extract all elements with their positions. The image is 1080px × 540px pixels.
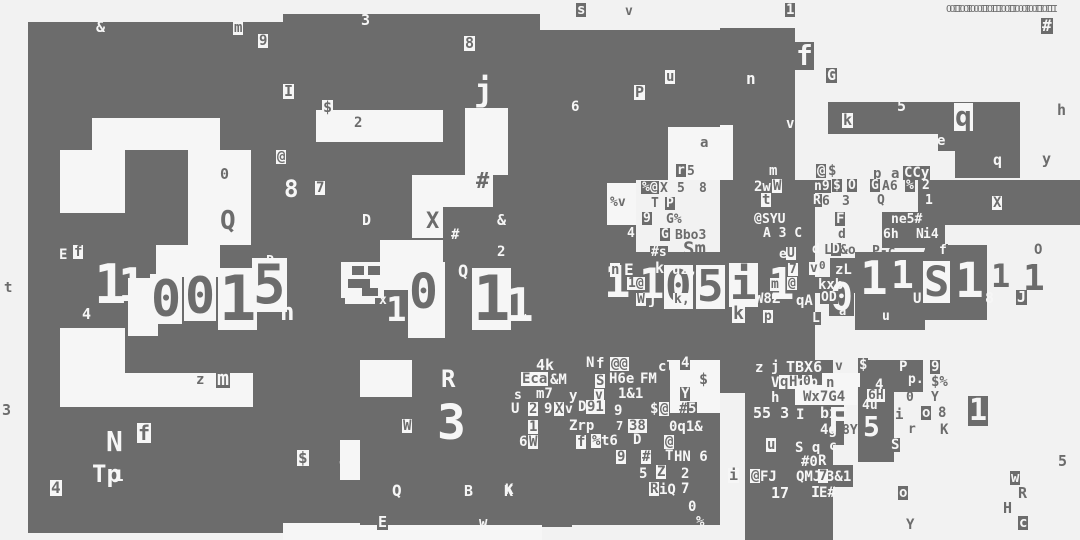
glyph: 8 bbox=[284, 177, 298, 201]
glyph: 5 bbox=[677, 182, 685, 195]
glyph: 3 bbox=[361, 13, 370, 28]
glyph: f bbox=[576, 435, 586, 449]
glyph: u bbox=[665, 70, 675, 84]
glyph: R bbox=[817, 454, 827, 468]
glyph: 4g bbox=[820, 423, 837, 437]
glyph: 7 bbox=[681, 482, 689, 496]
glyph: c bbox=[829, 440, 837, 453]
glyph: 1 bbox=[860, 255, 888, 301]
glyph: G% bbox=[666, 213, 682, 226]
gray-inner-block bbox=[352, 266, 364, 275]
glyph: 9 bbox=[930, 360, 940, 374]
glyph: $ bbox=[650, 402, 658, 416]
glyph: zL bbox=[835, 263, 852, 277]
glyph: X bbox=[426, 211, 439, 233]
glyph: % bbox=[905, 179, 915, 192]
glyph: m bbox=[769, 164, 777, 178]
glyph: 3&1 bbox=[826, 470, 851, 484]
glyph: h bbox=[771, 391, 779, 405]
glyph: z bbox=[195, 373, 205, 387]
glyph: q bbox=[993, 153, 1002, 168]
glyph: 8 bbox=[938, 406, 946, 420]
glyph: v bbox=[835, 360, 843, 373]
glyph: H bbox=[1003, 501, 1012, 516]
glyph: n9 bbox=[813, 180, 831, 193]
glyph: 5 bbox=[696, 265, 725, 309]
glyph: 5 bbox=[687, 402, 697, 416]
glyph: # bbox=[450, 228, 460, 242]
glyph: 2 bbox=[681, 467, 689, 481]
glyph: A6 bbox=[882, 180, 898, 193]
glyph: v bbox=[625, 5, 633, 18]
glyph: 1@ bbox=[627, 277, 645, 290]
glyph: B bbox=[464, 484, 473, 499]
glyph: G bbox=[660, 228, 670, 241]
glyph: 2 bbox=[528, 402, 538, 416]
glyph: @ bbox=[816, 164, 826, 178]
glyph: t bbox=[761, 193, 771, 207]
glyph: n bbox=[746, 71, 756, 87]
glyph: y bbox=[569, 389, 577, 403]
glyph: F bbox=[835, 212, 845, 226]
glyph: @ bbox=[787, 277, 797, 290]
glyph: E bbox=[59, 248, 67, 262]
glyph: @ bbox=[659, 402, 669, 416]
glyph: O bbox=[1034, 243, 1042, 257]
white-block bbox=[283, 523, 360, 540]
glyph: f bbox=[938, 244, 948, 257]
glyph: 2 bbox=[922, 179, 930, 192]
gray-block bbox=[955, 133, 1020, 178]
glyph: D bbox=[362, 213, 371, 228]
glyph: k bbox=[655, 261, 664, 276]
glyph: r bbox=[908, 423, 916, 436]
glyph: U bbox=[912, 292, 922, 306]
glyph: W bbox=[772, 179, 782, 193]
glyph: 6 bbox=[519, 435, 527, 449]
glyph: Y bbox=[906, 518, 914, 532]
glyph: qA bbox=[796, 294, 813, 308]
glyph: 3 bbox=[842, 195, 850, 208]
glyph: R bbox=[441, 367, 455, 391]
glyph: TBX6 bbox=[786, 360, 822, 375]
glyph: FM bbox=[640, 372, 657, 386]
glyph: R bbox=[1018, 486, 1027, 501]
glyph: 2 bbox=[354, 116, 362, 130]
glyph: S bbox=[890, 438, 900, 452]
glyph: f bbox=[795, 42, 814, 70]
glyph: I bbox=[283, 84, 294, 99]
glyph: f bbox=[596, 357, 604, 371]
glyph: 5 bbox=[1058, 454, 1067, 469]
glyph: 1 bbox=[114, 468, 124, 484]
glyph: X bbox=[660, 182, 668, 195]
glyph: 9 bbox=[544, 402, 552, 416]
glyph: HN 6 bbox=[674, 450, 708, 464]
glyph: #s bbox=[650, 246, 668, 259]
glyph: 1&1 bbox=[618, 387, 643, 401]
gray-block bbox=[720, 360, 745, 393]
white-block bbox=[345, 296, 375, 304]
glyph: Q bbox=[458, 264, 468, 281]
glyph: o bbox=[898, 486, 908, 500]
glyph: $ bbox=[322, 100, 333, 115]
glyph: i bbox=[895, 408, 903, 422]
glyph: 8 bbox=[464, 36, 475, 51]
glyph: T bbox=[664, 449, 674, 463]
glyph: &M bbox=[550, 373, 567, 387]
glyph: 1 bbox=[1023, 261, 1045, 297]
white-block bbox=[465, 108, 508, 175]
white-block bbox=[60, 328, 125, 376]
glyph: 6 bbox=[822, 195, 830, 208]
glyph: 1 bbox=[968, 396, 988, 426]
glyph: j bbox=[474, 74, 493, 106]
gray-block bbox=[360, 397, 412, 525]
glyph: v bbox=[809, 262, 819, 275]
glyph: 7 bbox=[616, 420, 623, 432]
glyph: p bbox=[763, 310, 773, 323]
glyph: 0 bbox=[150, 274, 182, 324]
glyph: 6h bbox=[883, 228, 899, 241]
glyph: ne5# bbox=[891, 213, 922, 226]
glyph: O bbox=[847, 179, 857, 192]
glyph: f bbox=[137, 423, 151, 443]
glyph: 1 bbox=[118, 262, 146, 308]
glyph: % bbox=[591, 434, 601, 448]
glyph: m bbox=[216, 368, 230, 388]
glyph: X bbox=[554, 402, 564, 416]
glyph: 0 bbox=[688, 500, 696, 514]
glyph: uz, bbox=[672, 263, 697, 277]
glyph: n bbox=[826, 376, 834, 390]
glyph: e bbox=[937, 134, 945, 148]
glyph: 55 3 bbox=[753, 406, 789, 421]
glyph: D bbox=[633, 433, 641, 447]
glyph: 0 bbox=[184, 271, 216, 321]
glyph: 3 bbox=[2, 403, 11, 418]
glyph: p. bbox=[908, 373, 924, 386]
glyph: & bbox=[497, 213, 506, 228]
glyph: R bbox=[649, 482, 659, 496]
glyph: Q bbox=[392, 483, 402, 499]
barcode-text: OOIIOOIOOOIIOIIIOOIIOOOIOOIIOIII bbox=[946, 5, 1055, 15]
glyph: j bbox=[648, 293, 656, 307]
glyph: 0 bbox=[819, 260, 826, 271]
glyph: n bbox=[610, 263, 620, 277]
glyph: h bbox=[1057, 103, 1066, 118]
glyph: 1 bbox=[955, 257, 984, 305]
gray-inner-block bbox=[362, 288, 378, 296]
glyph: Y bbox=[931, 391, 939, 404]
glyph: % bbox=[696, 515, 704, 529]
glyph: q bbox=[954, 103, 973, 131]
glyph: W bbox=[402, 419, 412, 433]
glyph: 5 bbox=[897, 99, 906, 114]
glyph: d bbox=[812, 243, 820, 256]
glyph: @@ bbox=[610, 357, 629, 371]
glyph: I bbox=[796, 408, 804, 422]
glyph: # bbox=[1041, 18, 1053, 34]
glyph: 7 bbox=[788, 263, 798, 276]
glyph: @ bbox=[750, 469, 760, 483]
glyph: k bbox=[842, 113, 853, 128]
glyph: $% bbox=[931, 375, 948, 389]
white-block bbox=[360, 360, 412, 397]
glyph: j bbox=[770, 360, 780, 374]
glyph: 4 bbox=[50, 480, 62, 496]
glyph: S bbox=[923, 261, 950, 303]
glyph: 4 bbox=[680, 356, 690, 370]
glyph: 2 bbox=[497, 245, 505, 259]
white-block bbox=[92, 118, 220, 150]
glyph: a bbox=[839, 305, 846, 317]
noise-canvas: OOIIOOIOOOIIOIIIOOIIOOOIOOIIOIII &m93sv1… bbox=[0, 0, 1080, 540]
glyph: T bbox=[651, 197, 659, 210]
glyph: i bbox=[728, 468, 739, 483]
glyph: S q bbox=[795, 441, 820, 455]
glyph: Eca bbox=[521, 372, 548, 386]
glyph: m bbox=[770, 278, 780, 291]
glyph: #0 bbox=[801, 455, 818, 469]
glyph: t6 bbox=[601, 434, 618, 448]
glyph: W bbox=[528, 435, 538, 449]
white-block bbox=[60, 150, 125, 213]
glyph: h bbox=[280, 300, 294, 324]
glyph: Z bbox=[656, 465, 666, 479]
glyph: $ bbox=[297, 450, 309, 466]
glyph: Q bbox=[220, 208, 236, 234]
glyph: 0 bbox=[220, 167, 229, 182]
glyph: E# bbox=[819, 486, 836, 500]
glyph: FJ bbox=[760, 470, 777, 484]
glyph: 1 bbox=[925, 194, 933, 207]
glyph: 6 bbox=[571, 100, 579, 114]
glyph: 91 bbox=[586, 400, 605, 414]
glyph: v bbox=[786, 117, 794, 131]
glyph: @ bbox=[276, 150, 286, 164]
glyph: P bbox=[898, 360, 908, 374]
glyph: z bbox=[755, 361, 763, 375]
glyph: P bbox=[665, 197, 675, 210]
glyph: s bbox=[576, 3, 586, 17]
glyph: 5 bbox=[687, 165, 695, 178]
glyph: 1 bbox=[991, 260, 1010, 292]
glyph: 4 bbox=[339, 453, 349, 469]
glyph: o bbox=[921, 406, 931, 420]
glyph: 38 bbox=[628, 419, 647, 433]
glyph: cl bbox=[658, 360, 675, 374]
glyph: # bbox=[476, 171, 489, 193]
glyph: W bbox=[636, 293, 646, 306]
glyph: 1 bbox=[386, 293, 406, 327]
glyph: m7 bbox=[536, 387, 553, 401]
glyph: k bbox=[732, 305, 745, 323]
glyph: R bbox=[812, 194, 822, 207]
glyph: c bbox=[1018, 516, 1028, 530]
glyph: BI# bbox=[635, 165, 658, 178]
glyph: 9 bbox=[258, 34, 268, 48]
glyph: $ bbox=[828, 164, 836, 178]
glyph: i4 bbox=[923, 228, 939, 241]
gray-inner-block bbox=[368, 266, 380, 275]
glyph: y bbox=[1042, 152, 1051, 167]
glyph: @ bbox=[664, 435, 674, 449]
glyph: S bbox=[595, 374, 605, 388]
glyph: 4 bbox=[82, 307, 91, 322]
glyph: 7 bbox=[315, 181, 325, 195]
glyph: L bbox=[811, 312, 821, 325]
glyph: f bbox=[73, 245, 83, 259]
glyph: & bbox=[96, 20, 105, 35]
glyph: Zrp bbox=[569, 419, 594, 433]
glyph: Q bbox=[877, 194, 885, 207]
gray-block bbox=[828, 102, 1020, 134]
glyph: k, bbox=[673, 293, 691, 306]
glyph: 5 bbox=[639, 467, 647, 481]
glyph: U bbox=[511, 402, 519, 416]
glyph: iQ bbox=[659, 483, 676, 497]
glyph: 0q1& bbox=[669, 420, 703, 434]
glyph: H6e bbox=[609, 372, 634, 386]
glyph: $ bbox=[858, 358, 868, 372]
glyph: 1 bbox=[891, 256, 914, 294]
glyph: N bbox=[106, 428, 123, 456]
glyph: E bbox=[377, 515, 388, 530]
glyph: $ bbox=[832, 179, 842, 192]
glyph: 4 bbox=[626, 227, 636, 240]
glyph: G bbox=[870, 179, 880, 192]
glyph: v bbox=[565, 403, 573, 416]
white-block bbox=[316, 110, 443, 142]
glyph: # bbox=[641, 450, 651, 464]
glyph: P bbox=[634, 85, 645, 100]
glyph: w bbox=[479, 516, 487, 530]
glyph: 9 bbox=[616, 450, 626, 464]
glyph: A 3 C bbox=[763, 227, 802, 240]
glyph: 5 bbox=[863, 413, 880, 441]
glyph: %@ bbox=[641, 181, 659, 194]
white-block bbox=[720, 125, 733, 180]
glyph: 0 bbox=[408, 268, 439, 316]
glyph: 8Y bbox=[842, 424, 858, 437]
glyph: a bbox=[700, 136, 708, 150]
glyph: 8 bbox=[699, 182, 707, 195]
glyph: K bbox=[940, 423, 948, 437]
glyph: 1 bbox=[785, 3, 795, 17]
glyph: r bbox=[676, 164, 686, 177]
glyph: OD bbox=[820, 291, 838, 304]
glyph: $ bbox=[699, 372, 708, 387]
glyph: 0 bbox=[906, 391, 914, 404]
glyph: u bbox=[766, 438, 776, 452]
glyph: Y bbox=[680, 387, 690, 401]
glyph: w bbox=[1010, 471, 1020, 485]
glyph: u bbox=[881, 310, 891, 323]
glyph: d bbox=[838, 228, 846, 241]
glyph: N bbox=[585, 356, 595, 370]
glyph: Sm bbox=[683, 240, 706, 259]
glyph: t bbox=[4, 281, 12, 295]
glyph: i bbox=[729, 263, 758, 307]
glyph: m bbox=[233, 21, 243, 35]
glyph: G bbox=[826, 68, 837, 83]
glyph: 17 bbox=[771, 486, 789, 501]
glyph: 9 bbox=[642, 212, 652, 225]
gray-inner-block bbox=[348, 279, 370, 288]
gray-block bbox=[540, 30, 720, 127]
glyph: SYU bbox=[762, 213, 785, 226]
glyph: K bbox=[505, 483, 513, 497]
glyph: p bbox=[810, 376, 818, 389]
glyph: 3 bbox=[437, 399, 466, 447]
glyph: 9 bbox=[614, 404, 622, 418]
glyph: X bbox=[992, 196, 1002, 210]
glyph: %v bbox=[610, 196, 626, 209]
glyph: W8Z bbox=[755, 292, 780, 306]
glyph: &o bbox=[840, 244, 856, 257]
glyph: w bbox=[519, 311, 526, 323]
glyph: 1 bbox=[528, 420, 538, 434]
